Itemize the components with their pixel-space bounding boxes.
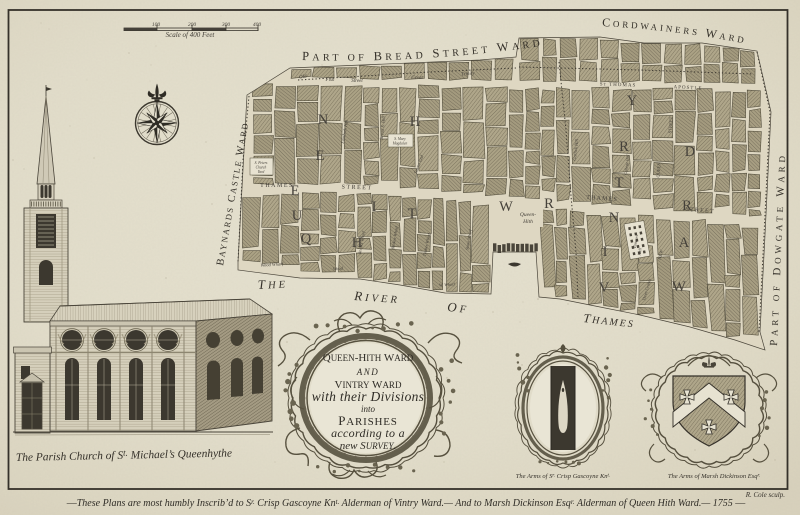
svg-text:into: into [361, 404, 376, 414]
svg-text:―These Plans are most humbly I: ―These Plans are most humbly Inscrib’d t… [66, 498, 747, 509]
svg-text:V: V [599, 280, 610, 296]
svg-text:W: W [499, 199, 513, 215]
svg-text:Q: Q [301, 231, 312, 247]
svg-text:R. Cole sculp.: R. Cole sculp. [745, 491, 786, 499]
svg-text:QUEEN-HITH WARD: QUEEN-HITH WARD [323, 352, 414, 364]
svg-text:The Arms of Sr. Crisp Gascoyne: The Arms of Sr. Crisp Gascoyne Knt. [516, 473, 610, 480]
svg-text:AND: AND [356, 367, 380, 377]
svg-text:A: A [679, 235, 690, 251]
svg-text:D: D [685, 144, 695, 160]
svg-text:Wood: Wood [333, 266, 344, 272]
svg-text:according to a: according to a [331, 426, 405, 440]
svg-text:R: R [619, 139, 629, 155]
svg-text:N: N [318, 112, 329, 128]
svg-text:Church: Church [256, 166, 267, 170]
svg-text:Queen-: Queen- [520, 212, 536, 218]
svg-text:Yard: Yard [258, 170, 265, 174]
svg-text:new SURVEY.: new SURVEY. [340, 440, 397, 452]
svg-text:Great: Great [411, 76, 423, 81]
svg-text:W: W [672, 279, 686, 295]
svg-text:with their Divisions: with their Divisions [312, 389, 425, 404]
svg-text:THAMES: THAMES [260, 183, 294, 189]
svg-text:Y: Y [627, 93, 638, 109]
svg-text:Street: Street [351, 79, 363, 84]
svg-text:E: E [316, 148, 325, 164]
svg-text:Scale of 400 Feet: Scale of 400 Feet [166, 31, 216, 39]
svg-text:400: 400 [253, 21, 262, 28]
svg-text:N: N [609, 210, 620, 226]
svg-text:U: U [292, 208, 303, 224]
svg-text:100: 100 [152, 22, 161, 28]
svg-text:I: I [372, 199, 377, 215]
svg-text:I: I [603, 244, 608, 260]
svg-text:Hith: Hith [522, 219, 533, 225]
svg-text:H: H [410, 114, 421, 130]
svg-text:S. Mary: S. Mary [394, 137, 406, 141]
svg-text:Magdalen: Magdalen [392, 142, 408, 146]
svg-text:200: 200 [188, 22, 197, 28]
svg-text:R: R [544, 196, 554, 212]
svg-text:The Arms of Marsh Dickinson Es: The Arms of Marsh Dickinson Esqr. [668, 473, 760, 480]
svg-text:S. Peters: S. Peters [255, 161, 268, 165]
svg-text:Fish: Fish [325, 78, 335, 83]
svg-text:T: T [615, 175, 624, 191]
svg-text:T: T [408, 206, 417, 222]
svg-text:STREET: STREET [341, 184, 372, 191]
svg-text:300: 300 [221, 22, 231, 28]
